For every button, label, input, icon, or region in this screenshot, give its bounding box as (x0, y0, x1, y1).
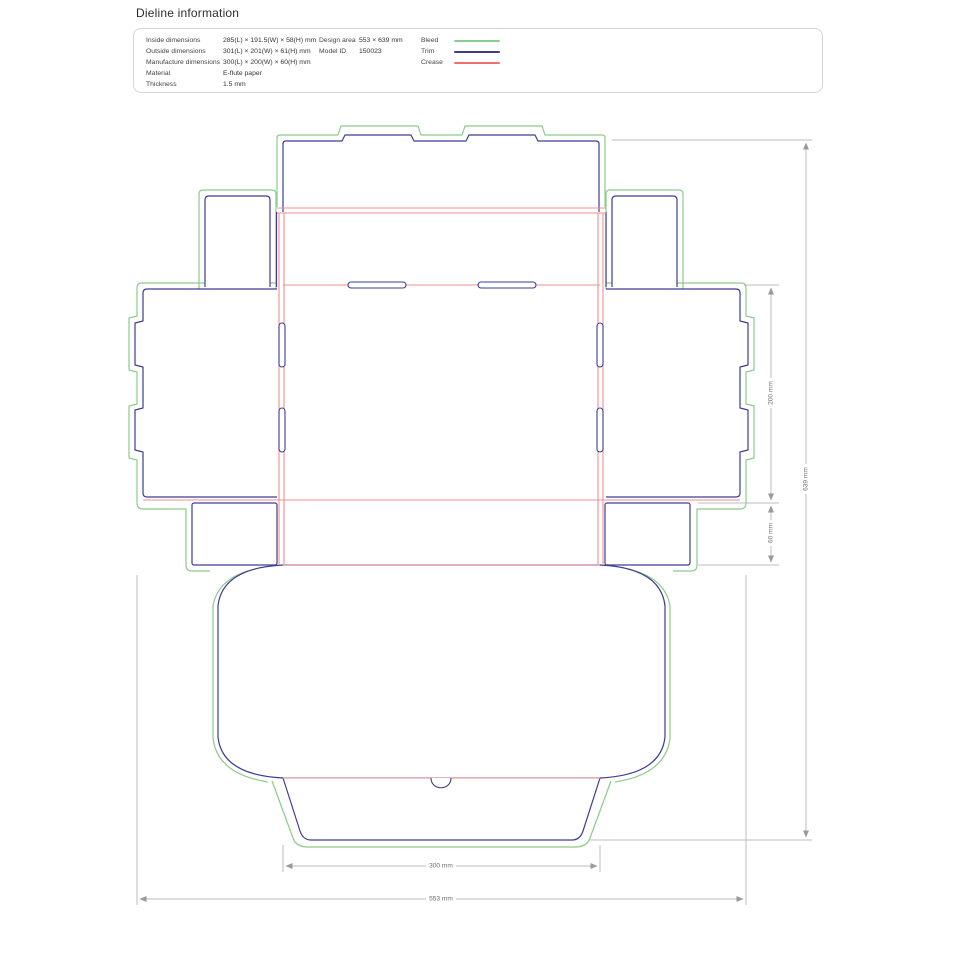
dim-label-wall-height: 60 mm (768, 520, 775, 546)
side-wing-right (606, 289, 748, 497)
trim-outline (135, 135, 748, 840)
dust-flap-top-left (205, 196, 270, 287)
dieline-drawing (0, 0, 955, 955)
dieline-page: Dieline information Inside dimensions 28… (0, 0, 955, 955)
top-tuck-flap (283, 135, 599, 212)
trim-cut-lines (277, 212, 607, 287)
dim-label-inner-width: 300 mm (426, 863, 456, 870)
side-wing-left (135, 289, 277, 497)
cover-panel (218, 565, 665, 778)
dust-flap-bottom-right (605, 503, 690, 565)
dust-flap-bottom-left (192, 503, 277, 565)
dust-flap-top-right (612, 196, 677, 287)
dim-label-outer-width: 553 mm (426, 896, 456, 903)
dim-label-outer-height: 639 mm (803, 464, 810, 494)
dim-label-panel-height: 200 mm (768, 378, 775, 408)
